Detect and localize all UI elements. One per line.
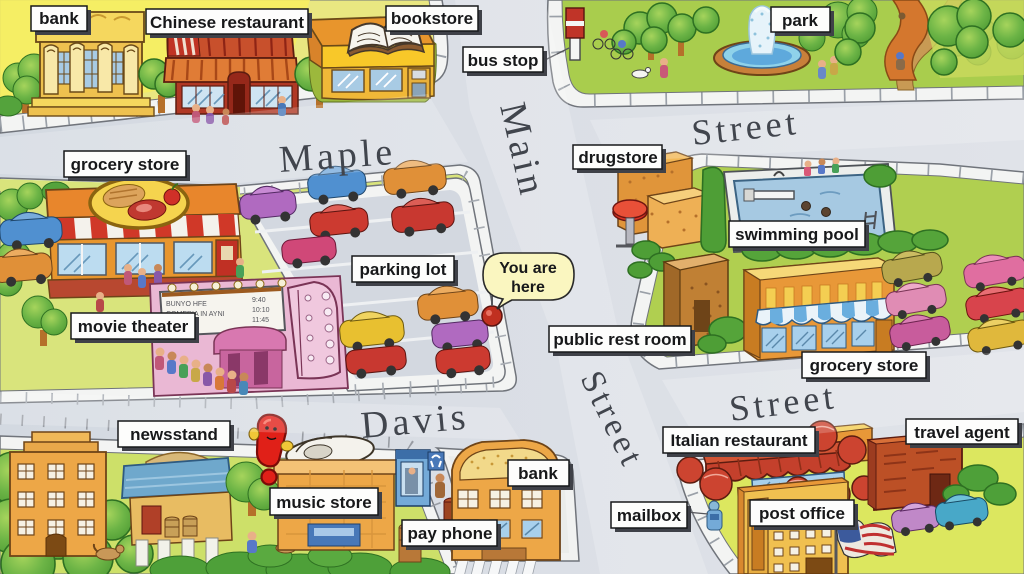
svg-text:music store: music store: [276, 493, 371, 512]
svg-text:parking lot: parking lot: [360, 260, 447, 279]
svg-text:swimming pool: swimming pool: [735, 225, 859, 244]
svg-text:10:10: 10:10: [252, 307, 270, 314]
svg-text:newsstand: newsstand: [130, 425, 218, 444]
svg-text:bus stop: bus stop: [468, 51, 539, 70]
svg-text:bank: bank: [518, 464, 558, 483]
svg-text:here: here: [511, 279, 545, 296]
svg-text:Italian restaurant: Italian restaurant: [671, 431, 808, 450]
svg-text:pay phone: pay phone: [407, 524, 492, 543]
svg-text:drugstore: drugstore: [578, 148, 657, 167]
svg-text:grocery store: grocery store: [71, 155, 180, 174]
svg-text:post office: post office: [759, 504, 845, 523]
svg-text:You are: You are: [499, 260, 557, 277]
svg-text:Chinese restaurant: Chinese restaurant: [150, 13, 304, 32]
svg-text:park: park: [782, 11, 818, 30]
svg-text:travel agent: travel agent: [914, 423, 1010, 442]
svg-text:bookstore: bookstore: [391, 9, 473, 28]
svg-text:mailbox: mailbox: [617, 506, 682, 525]
svg-text:bank: bank: [39, 9, 79, 28]
svg-text:11:45: 11:45: [252, 317, 269, 324]
svg-text:grocery store: grocery store: [810, 356, 919, 375]
svg-text:public rest room: public rest room: [553, 330, 686, 349]
svg-text:movie theater: movie theater: [78, 317, 189, 336]
svg-text:Maple: Maple: [278, 131, 398, 181]
svg-text:BUNYO HFE: BUNYO HFE: [166, 301, 207, 308]
svg-text:9:40: 9:40: [252, 297, 266, 304]
